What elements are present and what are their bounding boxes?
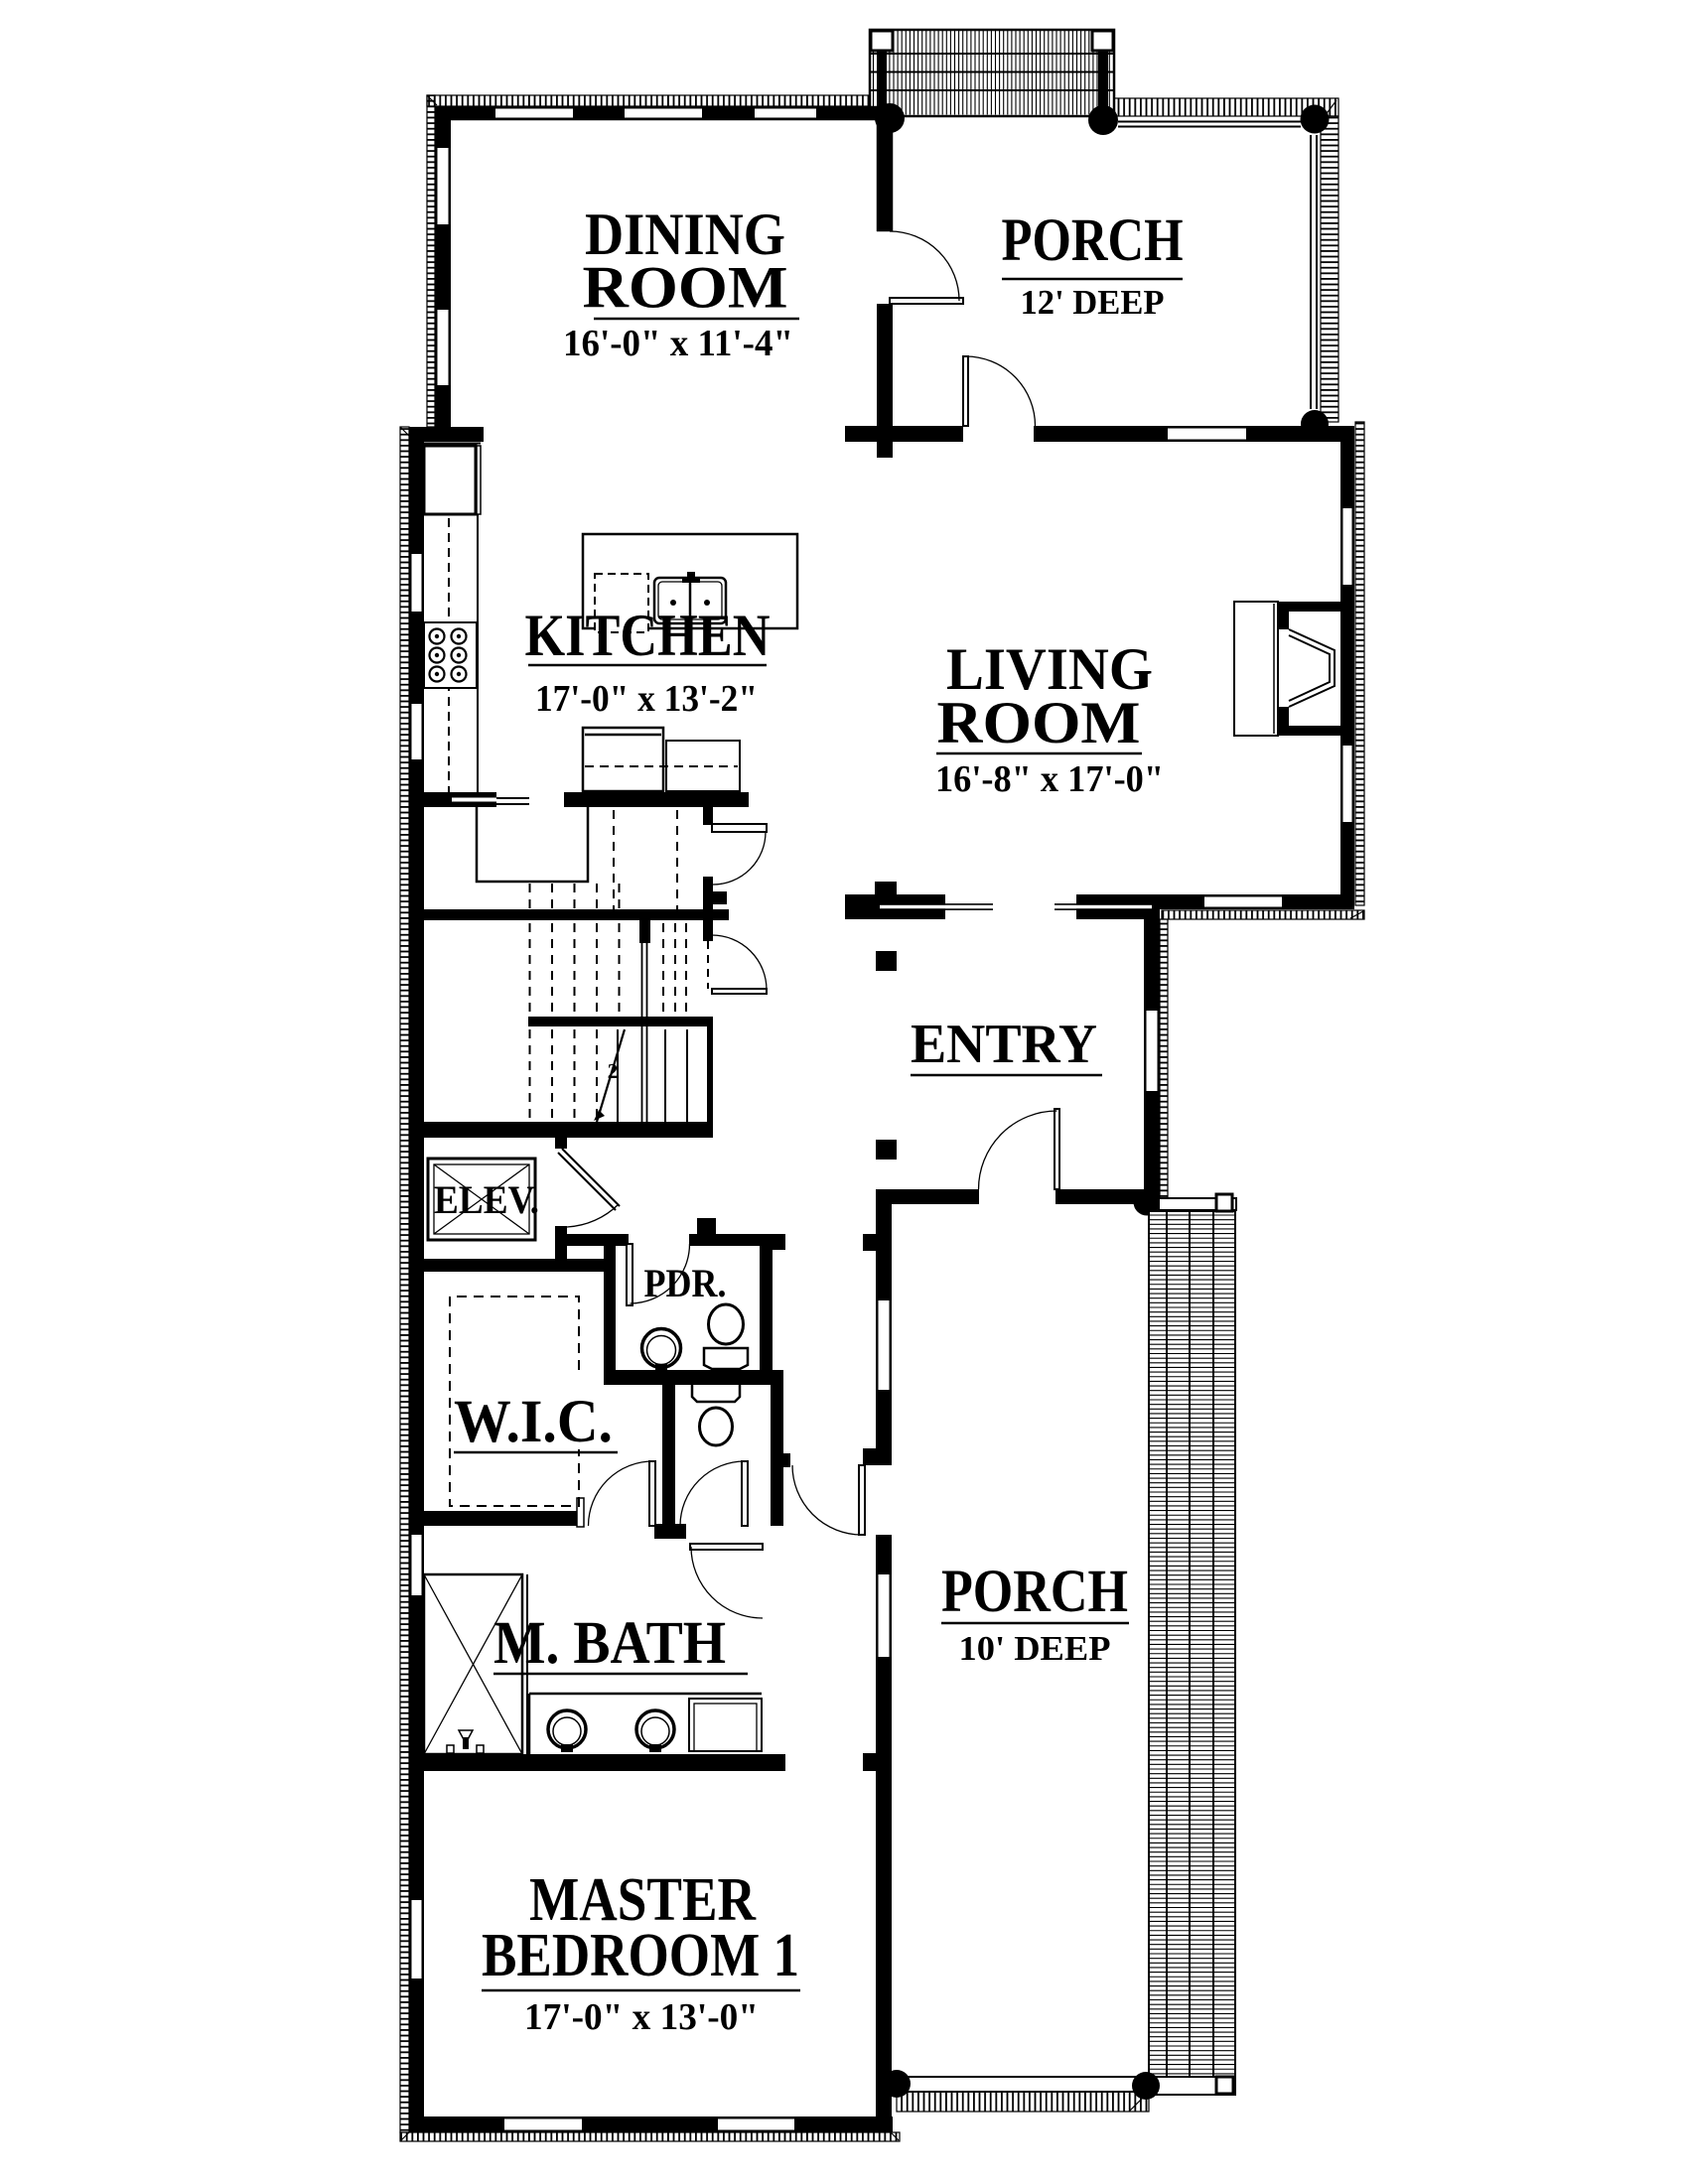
svg-text:16'-8" x 17'-0": 16'-8" x 17'-0" xyxy=(935,758,1164,800)
svg-text:17'-0" x 13'-0": 17'-0" x 13'-0" xyxy=(524,1996,759,2038)
svg-text:17'-0" x 13'-2": 17'-0" x 13'-2" xyxy=(535,678,758,720)
svg-text:KITCHEN: KITCHEN xyxy=(525,603,771,668)
svg-text:PDR.: PDR. xyxy=(644,1261,727,1305)
svg-text:ROOM: ROOM xyxy=(937,690,1141,755)
svg-text:W.I.C.: W.I.C. xyxy=(454,1389,613,1455)
svg-text:M. BATH: M. BATH xyxy=(493,1610,726,1677)
svg-text:ENTRY: ENTRY xyxy=(911,1014,1097,1075)
svg-text:12' DEEP: 12' DEEP xyxy=(1021,283,1165,322)
svg-text:10' DEEP: 10' DEEP xyxy=(959,1629,1111,1668)
svg-text:ELEV.: ELEV. xyxy=(434,1177,539,1222)
svg-text:PORCH: PORCH xyxy=(941,1559,1128,1625)
svg-text:BEDROOM 1: BEDROOM 1 xyxy=(482,1922,799,1989)
svg-text:2: 2 xyxy=(608,1059,619,1083)
svg-text:ROOM: ROOM xyxy=(583,255,788,321)
svg-text:16'-0" x 11'-4": 16'-0" x 11'-4" xyxy=(563,323,793,364)
svg-text:PORCH: PORCH xyxy=(1002,207,1184,274)
